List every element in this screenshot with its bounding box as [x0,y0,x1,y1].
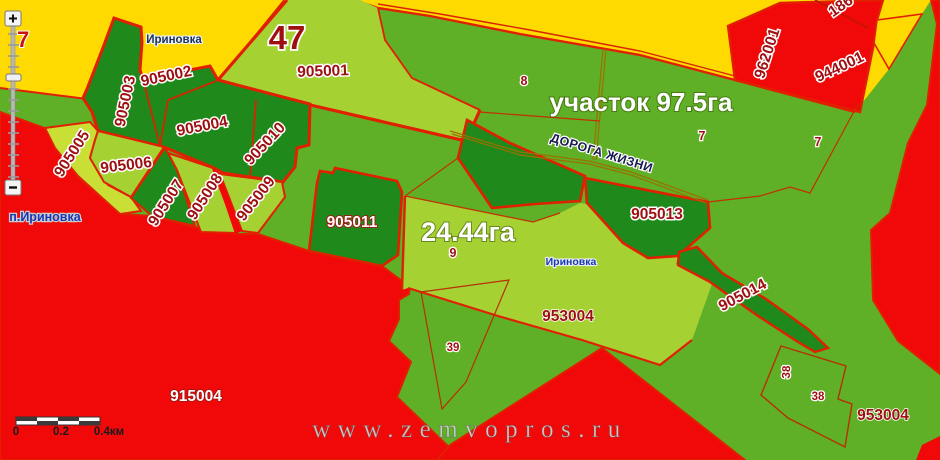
svg-text:47: 47 [269,19,306,56]
svg-text:7: 7 [699,129,706,143]
svg-text:905013: 905013 [631,206,683,223]
svg-text:24.44га: 24.44га [421,217,516,247]
svg-text:8: 8 [521,74,528,88]
svg-text:0: 0 [13,426,19,438]
svg-text:39: 39 [447,342,460,354]
svg-text:915004: 915004 [170,388,222,405]
svg-text:Ириновка: Ириновка [546,256,597,268]
svg-text:0.4км: 0.4км [94,426,124,438]
svg-text:7: 7 [815,135,822,149]
svg-text:www.zemvopros.ru: www.zemvopros.ru [312,416,628,443]
svg-text:905001: 905001 [297,62,350,81]
svg-text:905011: 905011 [327,214,378,231]
svg-text:7: 7 [17,27,29,52]
svg-text:953004: 953004 [542,308,594,325]
svg-text:участок 97.5га: участок 97.5га [550,87,733,117]
svg-text:9: 9 [450,246,457,260]
svg-text:953004: 953004 [857,407,909,424]
svg-text:38: 38 [812,391,825,403]
svg-text:0.2: 0.2 [53,426,69,438]
svg-text:38: 38 [781,365,793,379]
svg-text:п.Ириновка: п.Ириновка [9,210,81,224]
svg-text:Ириновка: Ириновка [146,34,202,46]
